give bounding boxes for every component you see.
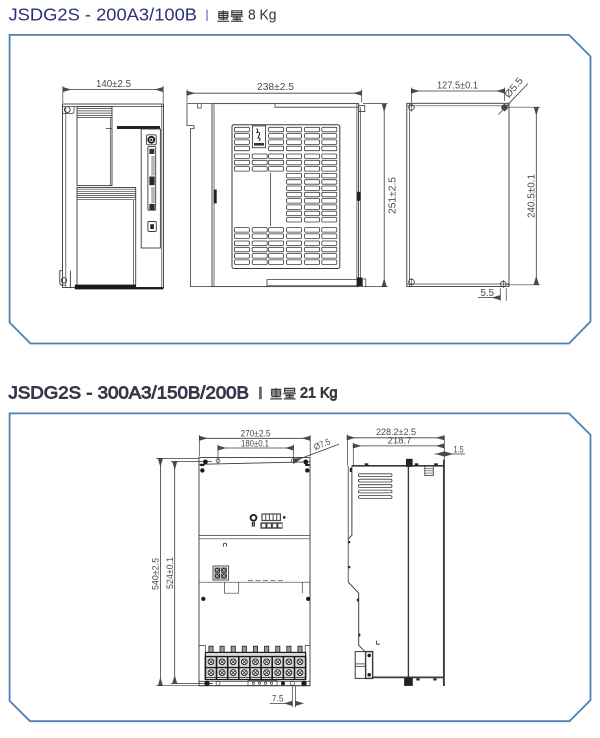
svg-text:240.5±0.1: 240.5±0.1 [527, 174, 538, 218]
svg-text:540±2.5: 540±2.5 [151, 558, 161, 590]
svg-text:5.5: 5.5 [481, 288, 495, 299]
svg-text:251±2.5: 251±2.5 [387, 176, 398, 214]
svg-text:270±2.5: 270±2.5 [241, 429, 271, 439]
svg-text:7.5: 7.5 [272, 693, 284, 703]
svg-text:127.5±0.1: 127.5±0.1 [437, 80, 478, 91]
svg-text:238±2.5: 238±2.5 [257, 82, 295, 93]
svg-text:1.5: 1.5 [454, 444, 464, 454]
svg-text:180±0.1: 180±0.1 [241, 438, 269, 448]
svg-text:JSDG2S - 200A3/100B: JSDG2S - 200A3/100B [9, 5, 198, 25]
svg-text:8 Kg: 8 Kg [248, 8, 277, 24]
svg-text:218.7: 218.7 [388, 435, 412, 445]
svg-text:21 Kg: 21 Kg [300, 385, 338, 401]
svg-text:524±0.1: 524±0.1 [165, 557, 175, 589]
svg-text:140±2.5: 140±2.5 [96, 79, 132, 90]
svg-text:JSDG2S - 300A3/150B/200B: JSDG2S - 300A3/150B/200B [9, 382, 250, 402]
